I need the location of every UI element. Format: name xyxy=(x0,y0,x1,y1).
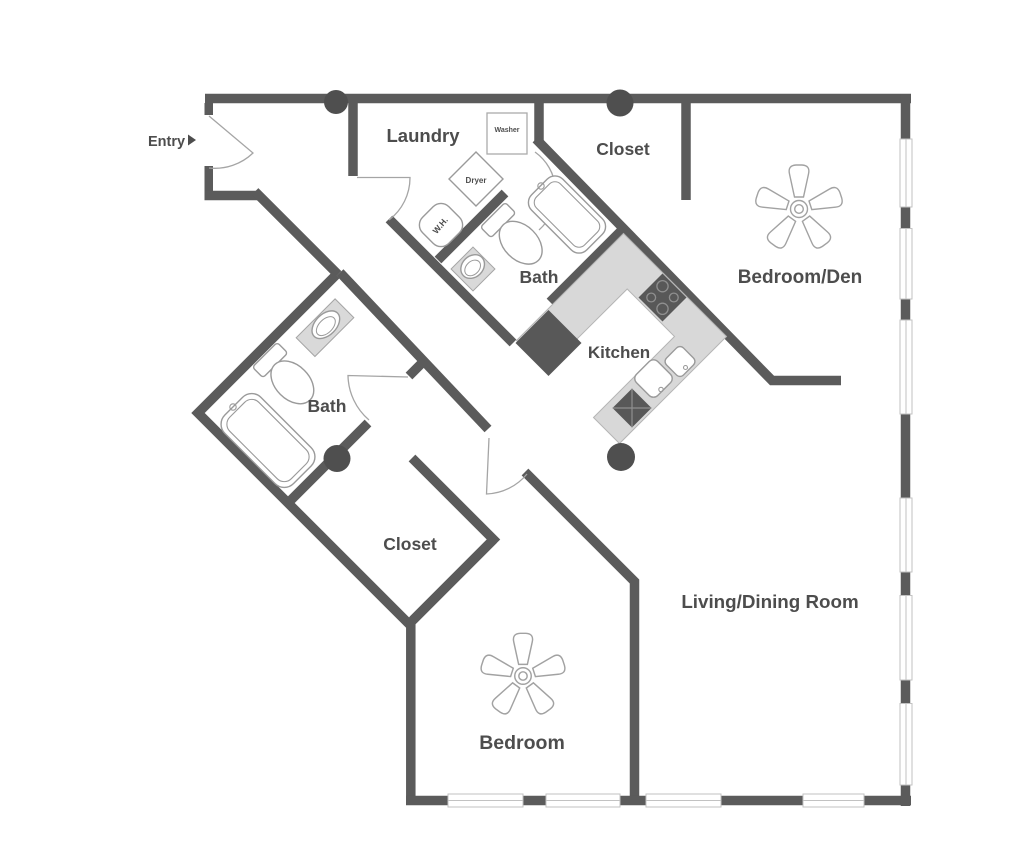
svg-text:Bath: Bath xyxy=(308,396,347,416)
svg-text:Bath: Bath xyxy=(520,267,559,287)
svg-text:Closet: Closet xyxy=(596,139,650,159)
svg-text:Dryer: Dryer xyxy=(466,176,487,185)
svg-text:Bedroom: Bedroom xyxy=(479,732,565,754)
svg-text:Entry: Entry xyxy=(148,134,185,150)
svg-text:Washer: Washer xyxy=(494,127,519,134)
svg-text:Closet: Closet xyxy=(383,534,437,554)
svg-text:Laundry: Laundry xyxy=(387,125,461,146)
svg-text:Living/Dining Room: Living/Dining Room xyxy=(681,591,858,612)
svg-text:Kitchen: Kitchen xyxy=(588,343,650,362)
svg-text:Bedroom/Den: Bedroom/Den xyxy=(738,267,863,288)
